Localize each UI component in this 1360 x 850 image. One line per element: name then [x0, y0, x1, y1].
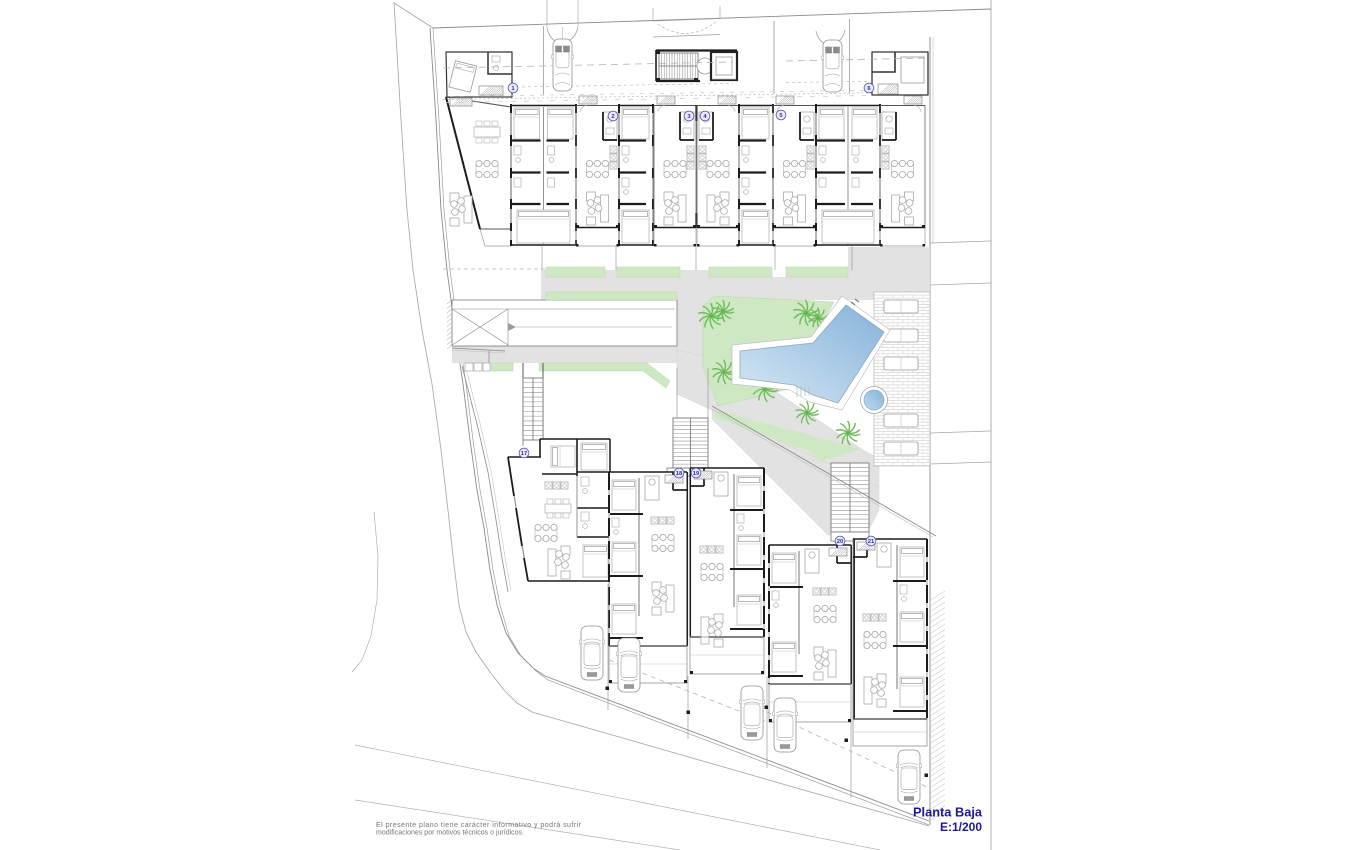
svg-text:21: 21	[868, 539, 875, 545]
svg-text:El presente plano tiene caráct: El presente plano tiene carácter informa…	[376, 822, 582, 829]
svg-text:Planta Baja: Planta Baja	[913, 805, 983, 820]
svg-text:modificaciones por motivos téc: modificaciones por motivos técnicos o ju…	[376, 830, 524, 837]
svg-text:20: 20	[837, 539, 843, 545]
svg-text:18: 18	[676, 471, 683, 477]
svg-text:17: 17	[521, 451, 527, 457]
svg-text:2: 2	[611, 114, 614, 120]
svg-text:E:1/200: E:1/200	[940, 820, 982, 834]
svg-text:19: 19	[693, 471, 700, 477]
